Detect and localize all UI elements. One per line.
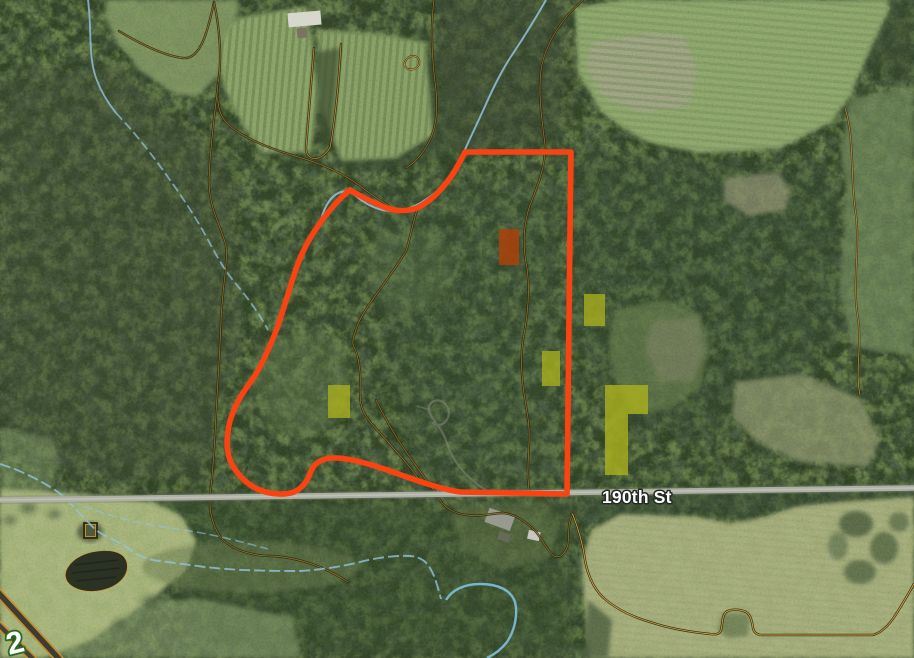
svg-text:190th St: 190th St	[602, 487, 672, 507]
